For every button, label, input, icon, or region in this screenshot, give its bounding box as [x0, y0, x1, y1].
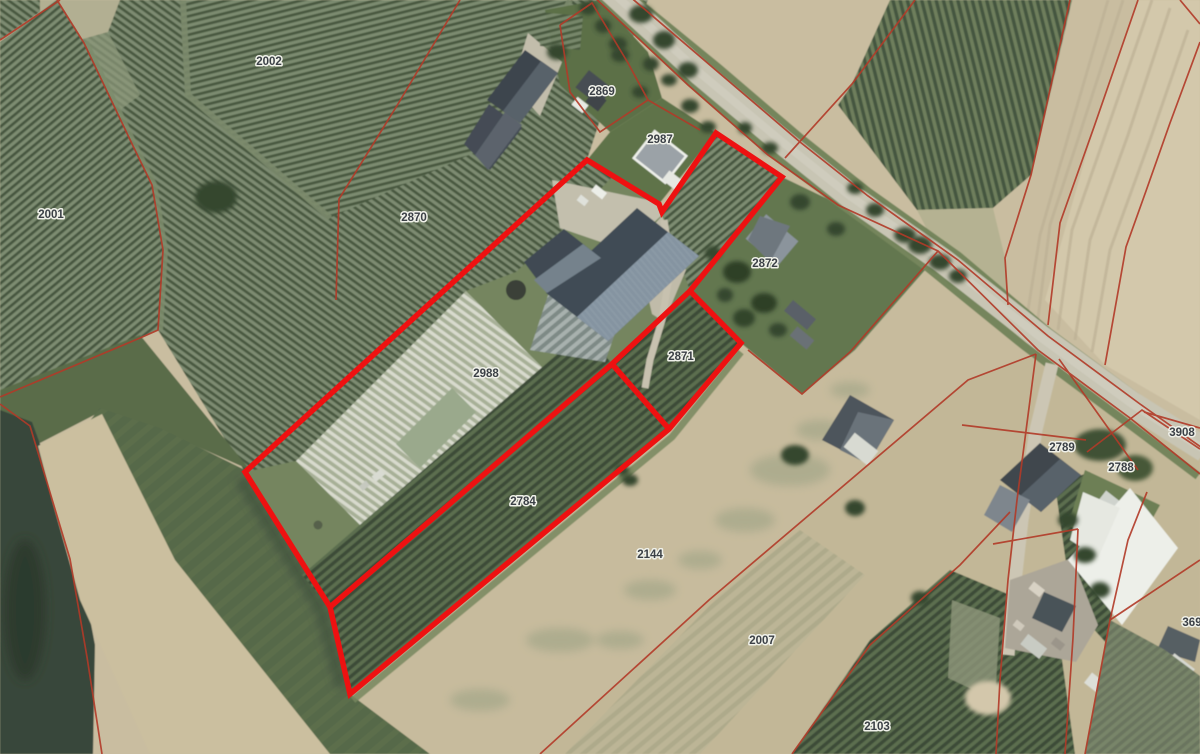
svg-text:2869: 2869 [589, 86, 615, 98]
svg-text:2103: 2103 [864, 721, 890, 733]
svg-text:2001: 2001 [38, 209, 64, 221]
svg-text:2002: 2002 [256, 56, 282, 68]
svg-text:2788: 2788 [1108, 462, 1134, 474]
svg-text:369: 369 [1182, 617, 1200, 629]
svg-text:2870: 2870 [401, 212, 427, 224]
svg-text:2872: 2872 [752, 258, 778, 270]
svg-text:3908: 3908 [1169, 427, 1195, 439]
svg-text:2007: 2007 [749, 635, 775, 647]
svg-text:2988: 2988 [473, 368, 499, 380]
svg-text:2871: 2871 [668, 351, 694, 363]
svg-text:2987: 2987 [647, 134, 673, 146]
svg-text:2784: 2784 [510, 496, 536, 508]
svg-text:2144: 2144 [637, 549, 663, 561]
svg-text:2789: 2789 [1049, 442, 1075, 454]
